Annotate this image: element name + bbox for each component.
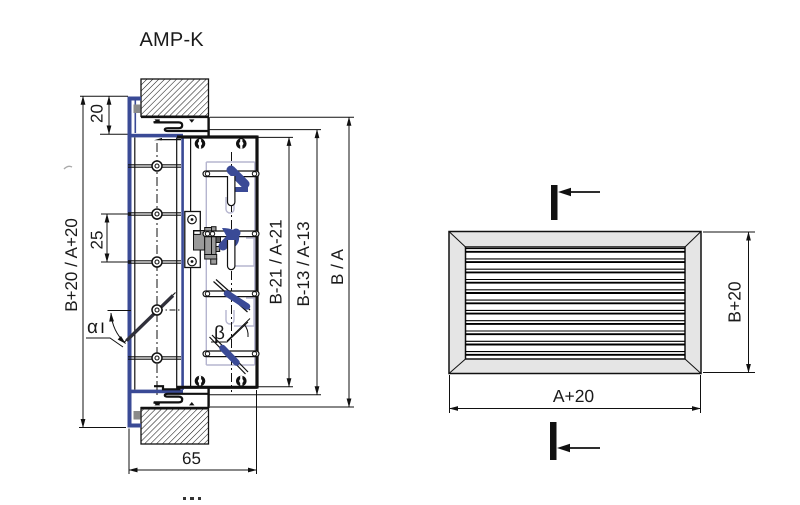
svg-text:65: 65 (182, 449, 201, 468)
svg-text:B-13 / A-13: B-13 / A-13 (294, 221, 313, 306)
svg-text:20: 20 (88, 104, 107, 123)
svg-text:B+20: B+20 (725, 281, 745, 323)
svg-text:β: β (214, 323, 225, 344)
svg-text:B / A: B / A (328, 248, 347, 285)
svg-text:A+20: A+20 (553, 386, 595, 406)
svg-text:25: 25 (88, 231, 107, 250)
svg-text:B-21 / A-21: B-21 / A-21 (267, 219, 286, 304)
svg-text:α: α (87, 317, 98, 338)
svg-text:AMP-K: AMP-K (140, 29, 205, 51)
svg-text:B+20 / A+20: B+20 / A+20 (62, 218, 81, 312)
